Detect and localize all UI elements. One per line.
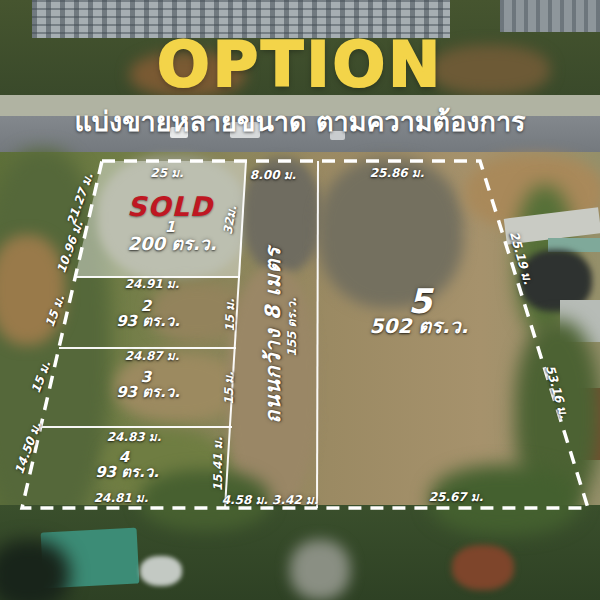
plot3-dim-right: 15 ม. — [223, 371, 235, 404]
road-dim-bottom: 4.58 ม. 3.42 ม. — [222, 494, 319, 506]
plot1-dim-top: 25 ม. — [150, 167, 183, 179]
land-sale-poster: OPTION แบ่งขายหลายขนาด ตามความต้องการ 25… — [0, 0, 600, 600]
plot5-area-label: 502 ตร.ว. — [370, 316, 469, 336]
plot1-sold-badge: SOLD — [127, 193, 213, 220]
plot2-area-label: 93 ตร.ว. — [116, 314, 180, 329]
plot4-dim-bottom: 24.81 ม. — [94, 492, 149, 504]
plot4-dim-top: 24.83 ม. — [107, 431, 162, 443]
plot3-dim-top: 24.87 ม. — [125, 350, 180, 362]
plot2-dim-top: 24.91 ม. — [125, 278, 180, 290]
plot5-number: 5 — [408, 284, 432, 318]
road-area-label: 155 ตร.ว. — [286, 297, 298, 356]
poster-subtitle: แบ่งขายหลายขนาด ตามความต้องการ — [0, 100, 600, 143]
plot2-dim-right: 15 ม. — [224, 298, 236, 331]
plot3-area-label: 93 ตร.ว. — [116, 385, 180, 400]
plot5-dim-bottom: 25.67 ม. — [429, 491, 484, 503]
road-dim-top: 8.00 ม. — [250, 169, 296, 181]
plot4-area-label: 93 ตร.ว. — [95, 465, 159, 480]
plot4-dim-right: 15.41 ม. — [212, 437, 224, 492]
road-right-edge — [317, 161, 318, 508]
plot5-dim-top: 25.86 ม. — [370, 167, 425, 179]
poster-title: OPTION — [0, 28, 600, 101]
plot1-area-label: 200 ตร.ว. — [128, 235, 217, 253]
road-name-label: ถนนกว้าง 8 เมตร — [263, 246, 284, 423]
